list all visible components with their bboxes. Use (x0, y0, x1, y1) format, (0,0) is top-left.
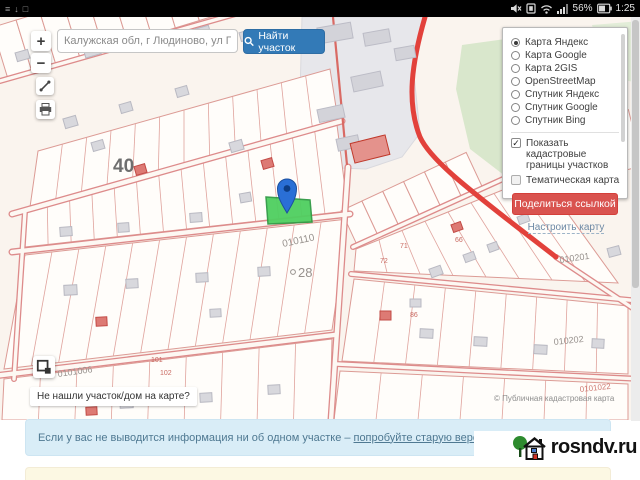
mute-icon (510, 3, 522, 14)
download-icon: ↓ (14, 4, 19, 14)
radio-icon[interactable] (511, 38, 520, 47)
radio-icon[interactable] (511, 103, 520, 112)
layer-option-satellite-bing[interactable]: Спутник Bing (511, 114, 621, 127)
overlapping-squares-icon (36, 359, 52, 375)
layer-option-openstreetmap[interactable]: OpenStreetMap (511, 75, 621, 88)
radio-icon[interactable] (511, 64, 520, 73)
checkbox-icon[interactable]: ✓ (511, 138, 521, 148)
clock: 1:25 (616, 3, 635, 14)
panel-divider (511, 132, 619, 133)
layer-option-label: Спутник Яндекс (525, 89, 599, 100)
radio-icon[interactable] (511, 116, 520, 125)
signal-icon (557, 3, 569, 14)
layer-option-label: Карта Google (525, 50, 587, 61)
layer-option-map-yandex[interactable]: Карта Яндекс (511, 36, 621, 49)
select-area-button[interactable] (33, 356, 55, 378)
battery-percent: 56% (573, 3, 593, 14)
status-bar: ≡ ↓ □ 56% 1:25 (0, 0, 640, 17)
wifi-icon (540, 4, 553, 14)
layer-option-label: OpenStreetMap (525, 76, 596, 87)
overlay-option-label: Тематическая карта (526, 175, 621, 186)
logo-text: rosndv.ru (551, 436, 637, 459)
not-found-link[interactable]: Не нашли участок/дом на карте? (30, 387, 197, 406)
layer-option-label: Карта 2GIS (525, 63, 577, 74)
layer-option-label: Спутник Bing (525, 115, 586, 126)
parcel-number: 102 (160, 370, 172, 377)
overlay-list: ✓Показать кадастровые границы участковТе… (511, 138, 621, 186)
search-icon (244, 36, 254, 47)
warning-strip (25, 467, 611, 480)
address-search-input[interactable] (57, 29, 238, 53)
layers-panel: Карта ЯндексКарта GoogleКарта 2GISOpenSt… (502, 27, 628, 199)
parcel-28-label: 28 (298, 265, 312, 280)
zoom-in-button[interactable]: + (31, 31, 51, 51)
measure-button[interactable] (36, 77, 54, 95)
find-parcel-button[interactable]: Найти участок (243, 29, 325, 54)
checkbox-icon[interactable] (511, 175, 521, 185)
parcel-number: 86 (410, 312, 418, 319)
radio-icon[interactable] (511, 51, 520, 60)
printer-icon (39, 103, 52, 116)
share-link-button[interactable]: Поделиться ссылкой (512, 193, 618, 215)
overlay-option-show-cadastral-borders[interactable]: ✓Показать кадастровые границы участков (511, 138, 621, 171)
layer-option-satellite-google[interactable]: Спутник Google (511, 101, 621, 114)
radio-icon[interactable] (511, 90, 520, 99)
configure-map-link-label: Настроить карту (528, 222, 605, 234)
layer-option-map-google[interactable]: Карта Google (511, 49, 621, 62)
configure-map-link[interactable]: Настроить карту (511, 222, 621, 233)
map-attribution: © Публичная кадастровая карта (494, 394, 615, 403)
radio-icon[interactable] (511, 77, 520, 86)
parcel-number: 66 (455, 237, 463, 244)
rosndv-logo-icon (512, 433, 548, 461)
notification-icons: ≡ ↓ □ (5, 4, 28, 14)
sync-icon: ≡ (5, 4, 10, 14)
zoom-out-button[interactable]: − (31, 53, 51, 73)
layer-option-satellite-yandex[interactable]: Спутник Яндекс (511, 88, 621, 101)
overlay-option-label: Показать кадастровые границы участков (526, 138, 621, 171)
sim-icon (526, 3, 536, 14)
base-layer-list: Карта ЯндексКарта GoogleКарта 2GISOpenSt… (511, 36, 621, 127)
parcel-number: 72 (380, 258, 388, 265)
map-viewport[interactable]: 40 010110 28 0101006 010201 010202 01010… (0, 17, 640, 420)
info-alert-text: Если у вас не выводится информация ни об… (38, 432, 350, 444)
parcel-number: 71 (400, 243, 408, 250)
quarter-number-label: 40 (113, 156, 134, 177)
layer-option-map-2gis[interactable]: Карта 2GIS (511, 62, 621, 75)
not-found-label: Не нашли участок/дом на карте? (37, 391, 190, 402)
page-scrollbar[interactable] (631, 17, 640, 421)
panel-scrollbar[interactable] (621, 34, 625, 142)
page-scrollbar-thumb[interactable] (632, 20, 639, 288)
parcel-number: 101 (151, 357, 163, 364)
battery-icon (597, 3, 612, 14)
screenshot-icon: □ (23, 4, 28, 14)
overlay-option-thematic-map[interactable]: Тематическая карта (511, 175, 621, 186)
branding-box: rosndv.ru (474, 431, 640, 463)
layer-option-label: Карта Яндекс (525, 37, 588, 48)
ruler-icon (38, 79, 52, 93)
print-button[interactable] (36, 100, 55, 119)
find-parcel-button-label: Найти участок (258, 30, 324, 54)
layer-option-label: Спутник Google (525, 102, 598, 113)
